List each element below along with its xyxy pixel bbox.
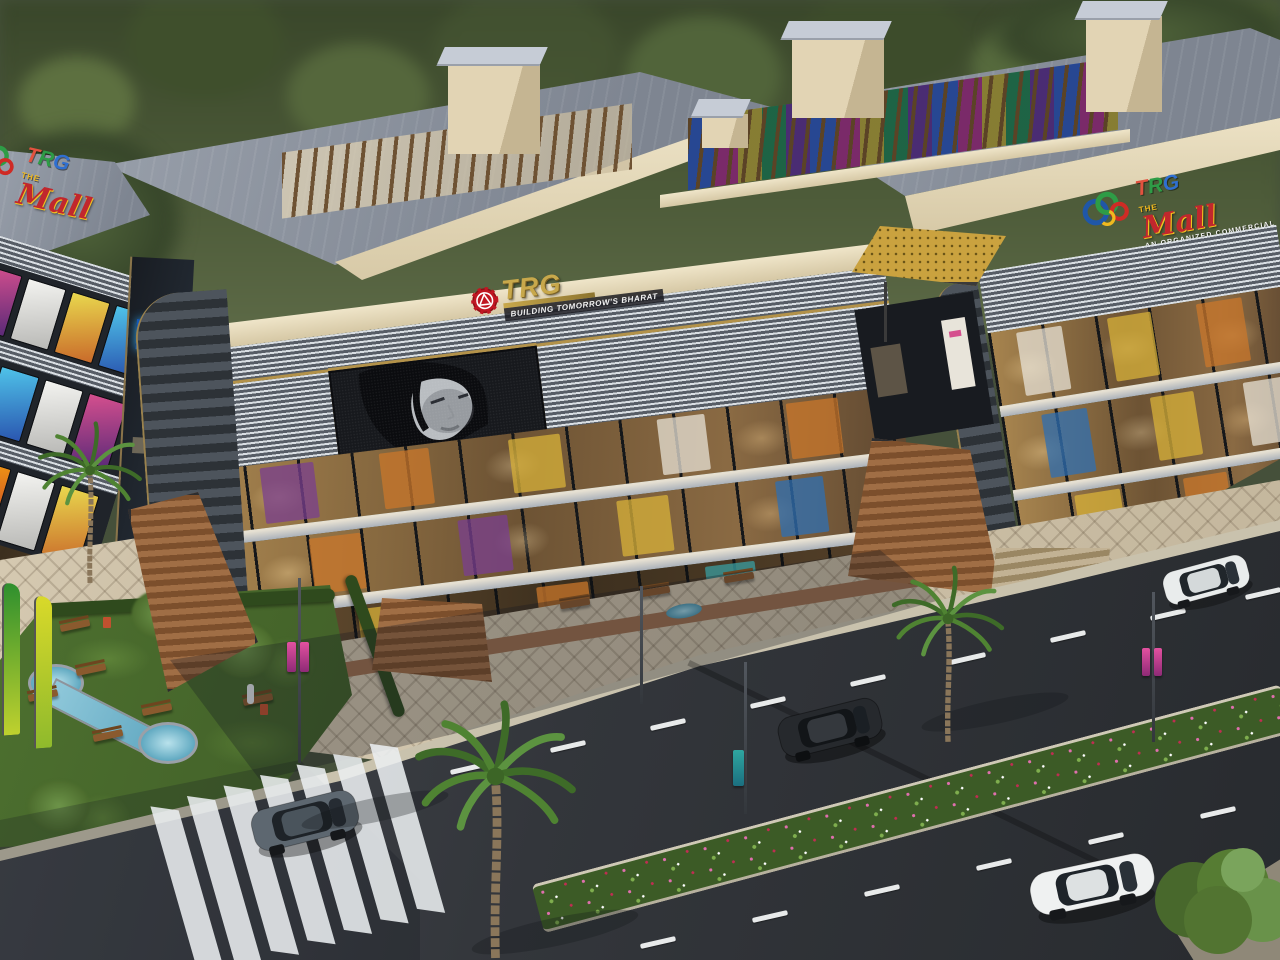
mall-rings-icon (1073, 180, 1139, 241)
shop-display (379, 448, 435, 510)
trg-gear-icon (469, 285, 500, 316)
fountain-pool (138, 722, 198, 764)
street-lamp (640, 586, 643, 704)
palm-tree (408, 668, 583, 960)
canopy-post (884, 282, 887, 342)
lamp-banner-pink (287, 642, 296, 672)
feather-flag-green (2, 582, 20, 735)
entrance-lobby (854, 291, 993, 442)
shop-display (775, 476, 829, 537)
palm-tree (25, 405, 155, 595)
lamp-banner-pink (1154, 648, 1162, 676)
feather-flag-yellow (34, 595, 52, 748)
shop-display (657, 414, 711, 475)
lamp-banner-teal (733, 750, 744, 786)
street-lamp (744, 662, 747, 814)
corner-tree (1148, 830, 1280, 960)
scene-canvas: TRG THE Mall TRG THE Mall AN ORGANIZED C… (0, 0, 1280, 960)
shop-display (260, 462, 320, 524)
rooftop-tower (792, 36, 884, 118)
rooftop-box (702, 114, 748, 148)
shop-display (616, 495, 674, 557)
shop-display (457, 515, 513, 577)
rooftop-tower (1086, 16, 1162, 112)
lobby-glow (870, 343, 907, 397)
trash-bin (103, 617, 111, 628)
shop-display (1041, 408, 1096, 478)
lamp-banner-pink (300, 642, 309, 672)
shop-display (786, 397, 844, 459)
shop-display (1196, 297, 1251, 367)
lobby-pillar (941, 317, 976, 390)
palm-tree (878, 548, 1018, 753)
shop-display (1016, 326, 1071, 396)
rooftop-tower (448, 62, 540, 154)
lamp-banner-pink (1142, 648, 1150, 676)
shop-display (508, 434, 566, 494)
